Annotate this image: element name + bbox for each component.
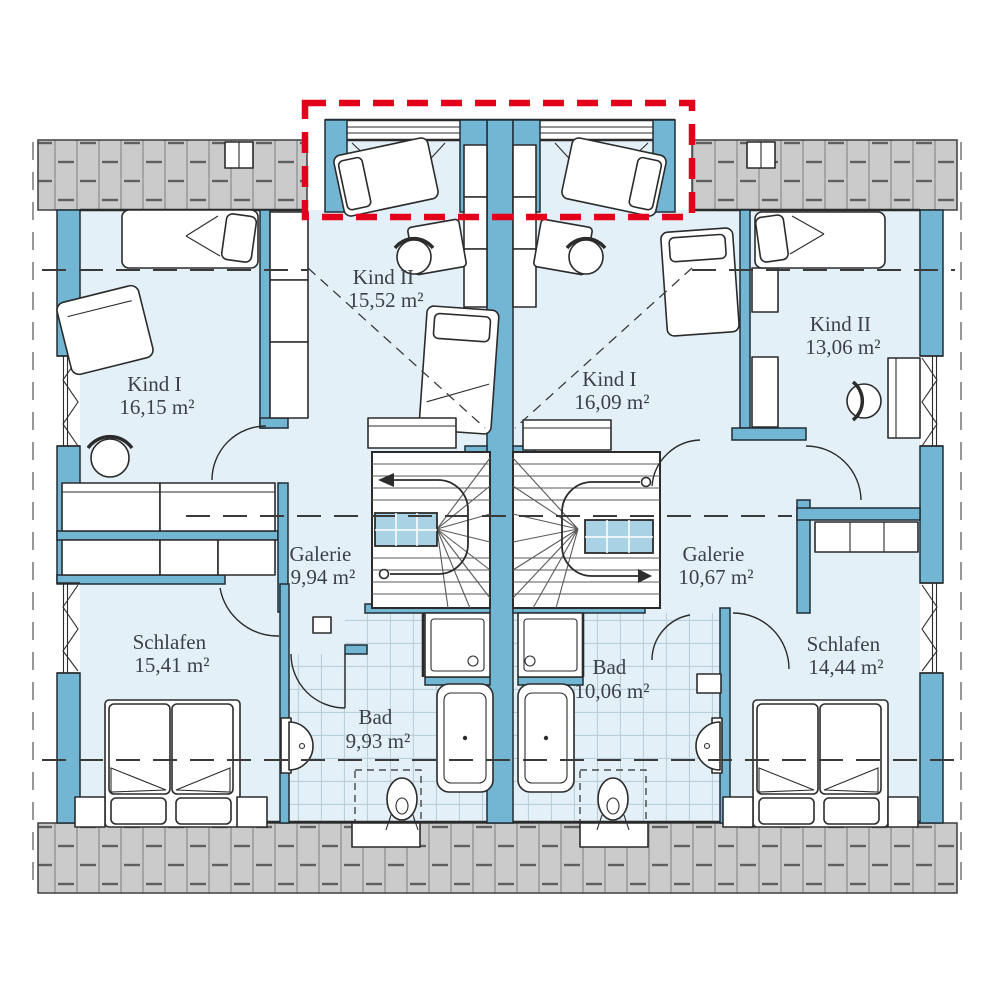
bathtub-left: [437, 684, 493, 792]
shelf-right-bad: [697, 674, 721, 693]
roof-window-right: [747, 142, 775, 168]
room-label-left-kind1: Kind I 16,15 m²: [119, 372, 194, 419]
room-label-left-schlafen: Schlafen 15,41 m²: [133, 630, 212, 677]
room-label-left-galerie: Galerie 9,94 m²: [289, 542, 356, 589]
double-bed-right: [723, 700, 918, 827]
roof-bottom: [38, 823, 957, 893]
sideboard-left-schlafen: [62, 540, 275, 575]
desk-right-galerie: [523, 420, 611, 450]
floor-plan-page: Kind I 16,15 m² Kind II 15,52 m² Galerie…: [0, 0, 1000, 1000]
desk-left-kind1: [62, 483, 275, 531]
bathtub-right: [518, 684, 574, 792]
room-label-right-kind1: Kind I 16,09 m²: [574, 367, 649, 414]
shower-left: [423, 613, 490, 677]
window-right-kind2: [920, 356, 943, 446]
nightstand: [237, 797, 267, 827]
shelf-column-right-kind1: [513, 145, 536, 307]
roof-window-left: [225, 142, 253, 168]
room-label-right-schlafen: Schlafen 14,44 m²: [807, 632, 886, 679]
stair-start-marker-right: [642, 478, 651, 487]
room-label-left-kind2: Kind II 15,52 m²: [348, 265, 423, 312]
nightstand: [75, 797, 105, 827]
shelf-column-left-kind2: [464, 145, 487, 307]
window-left-schlafen: [57, 583, 80, 673]
bed-right-kind1: [660, 228, 739, 337]
shower-right: [518, 613, 583, 677]
stairs-right: [513, 452, 660, 608]
shelf-left-galerie: [313, 617, 331, 633]
nightstand: [723, 797, 753, 827]
bed-left-kind2: [419, 306, 499, 435]
desk-right-kind2: [888, 358, 920, 438]
roof-notch-left: [352, 823, 420, 847]
floor-plan-drawing: Kind I 16,15 m² Kind II 15,52 m² Galerie…: [0, 0, 1000, 1000]
chair-right-kind1: [567, 239, 605, 274]
wardrobe-right-schlafen: [815, 522, 918, 552]
bed-right-kind2: [755, 212, 885, 268]
bed-left-kind1: [122, 210, 258, 268]
room-label-right-galerie: Galerie 10,67 m²: [678, 542, 753, 589]
window-right-schlafen: [920, 583, 943, 673]
stair-start-marker-left: [380, 570, 389, 579]
nightstand: [888, 797, 918, 827]
room-label-right-kind2: Kind II 13,06 m²: [805, 312, 880, 359]
roof-notch-right: [580, 823, 648, 847]
wardrobe-left-kind2: [270, 212, 308, 418]
desk-left-galerie: [368, 418, 456, 448]
stairs-left: [372, 452, 490, 608]
